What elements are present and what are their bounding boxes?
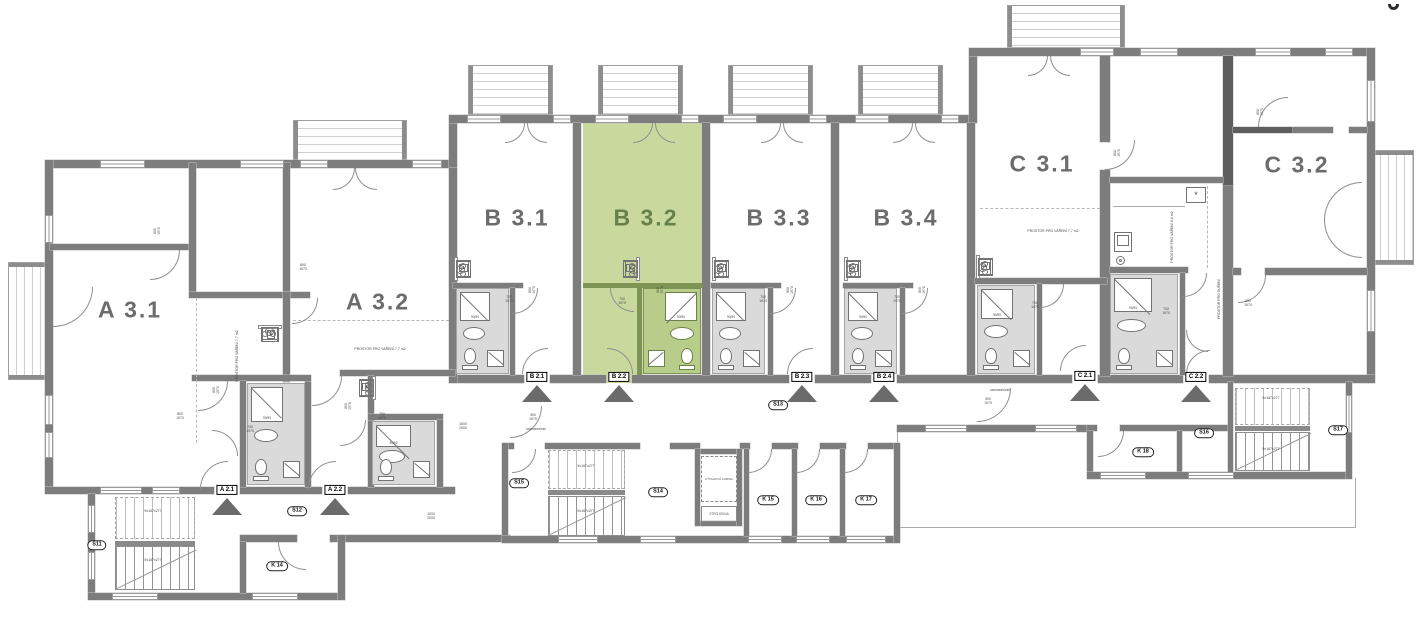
wall <box>1098 375 1183 383</box>
entrance-triangle-icon <box>869 385 899 402</box>
entrance-triangle-icon <box>212 498 242 515</box>
window <box>925 425 967 432</box>
window <box>112 593 158 600</box>
window <box>412 160 442 168</box>
wall <box>240 535 297 542</box>
wall <box>283 163 290 298</box>
elevator-cabin: VÝTAHOVÁ KABINA <box>701 456 737 502</box>
balcony <box>293 120 407 165</box>
room-tag-K15: K 15 <box>757 495 779 505</box>
wall <box>815 375 871 383</box>
entrance-triangle-icon <box>787 385 817 402</box>
balcony-wall <box>1373 151 1413 155</box>
window <box>1367 80 1375 122</box>
wall <box>695 449 742 454</box>
window <box>467 115 501 123</box>
window <box>252 593 298 600</box>
dimension-annotation: 9x167x277 <box>1262 396 1279 400</box>
window <box>100 487 142 494</box>
dimension-annotation: PROSTOR PRO SUŠENÍ <box>1217 279 1221 319</box>
window <box>45 432 53 458</box>
unit-hotspot-B3.4[interactable] <box>843 123 967 375</box>
wall <box>502 443 508 543</box>
wall <box>897 375 1072 383</box>
window <box>300 160 328 168</box>
window <box>681 115 699 123</box>
balcony-wall <box>599 66 603 114</box>
window <box>240 160 284 168</box>
unit-hotspot-B3.1[interactable] <box>457 123 573 375</box>
balcony-wall <box>469 66 473 114</box>
window <box>640 536 676 543</box>
wall <box>1110 177 1223 183</box>
dimension-annotation: 900 1970 <box>984 397 992 405</box>
shower-size-label: 90/90 <box>1115 306 1151 310</box>
balcony <box>728 65 813 115</box>
entrance-triangle-icon <box>522 385 552 402</box>
room-tag-S15: S15 <box>509 478 529 488</box>
window <box>1100 472 1146 479</box>
door-swing-icon <box>512 449 536 473</box>
wall <box>1087 431 1093 472</box>
shower-icon: 90/90 <box>1114 278 1152 312</box>
unit-hotspot-C3.2[interactable] <box>1233 56 1367 375</box>
window <box>558 536 598 543</box>
balcony <box>858 65 943 115</box>
stair-flight <box>115 497 195 539</box>
door-swing-icon <box>796 449 820 473</box>
balcony <box>8 262 48 380</box>
wall <box>632 375 789 383</box>
wall <box>1110 267 1188 273</box>
wall <box>894 443 900 543</box>
unit-hotspot-B3.2[interactable] <box>583 123 702 375</box>
window <box>1188 472 1234 479</box>
window <box>152 487 180 494</box>
elevator-machine-room: STROJOVNA <box>701 506 737 522</box>
dimension-annotation: samozavírač <box>990 388 1010 392</box>
balcony-wall <box>9 375 47 379</box>
toilet-icon <box>1116 348 1132 372</box>
wall <box>695 449 700 526</box>
footprint-line <box>897 527 1356 528</box>
unit-hotspot-A3.1[interactable] <box>53 168 283 487</box>
stair-landing <box>1235 426 1310 431</box>
wall <box>283 292 290 382</box>
door-swing-icon <box>1183 273 1207 297</box>
spiral-icon <box>1116 256 1125 265</box>
wall <box>449 115 975 123</box>
window <box>88 552 95 580</box>
stair-flight <box>1235 388 1310 425</box>
window <box>748 536 782 543</box>
stair-landing <box>548 490 625 495</box>
wall <box>573 123 581 375</box>
balcony <box>1372 150 1414 265</box>
wall <box>449 375 524 383</box>
door-swing-icon <box>510 406 542 438</box>
wall <box>240 542 246 593</box>
wall <box>338 535 345 600</box>
window <box>45 215 53 243</box>
balcony <box>598 65 683 115</box>
balcony-wall <box>808 66 812 114</box>
washing-machine-icon <box>1156 350 1173 367</box>
balcony-wall <box>402 121 406 164</box>
dimension-annotation: 1000 2000 <box>459 422 467 430</box>
room-tag-S11: S11 <box>87 540 106 550</box>
window <box>1080 48 1114 56</box>
balcony-wall <box>678 66 682 114</box>
door-swing-icon <box>1098 431 1124 457</box>
dimension-annotation: 700 1970 <box>1162 307 1170 315</box>
dimension-annotation: PROSTOR PRO VAŘENÍ 8,6 m2 <box>1170 211 1174 262</box>
window <box>809 115 827 123</box>
wall <box>1223 186 1233 376</box>
unit-hotspot-B3.3[interactable] <box>711 123 831 375</box>
window <box>100 160 145 168</box>
window <box>1035 425 1077 432</box>
room-tag-S14: S14 <box>648 487 668 497</box>
window <box>1367 290 1375 332</box>
room-tag-K16: K 16 <box>805 495 827 505</box>
room-tag-S16: S16 <box>1194 428 1214 438</box>
wall <box>1177 431 1182 472</box>
dimension-annotation: 900 1970 <box>529 413 537 421</box>
entrance-triangle-icon <box>1070 384 1100 401</box>
wall <box>702 123 710 375</box>
wall <box>1100 170 1110 376</box>
footprint-line <box>1355 478 1356 528</box>
window <box>846 536 886 543</box>
window <box>855 115 889 123</box>
wall <box>545 443 640 449</box>
balcony-wall <box>859 66 863 114</box>
dimension-annotation: samozavírač <box>526 427 546 431</box>
dimension-annotation: 9x167x277 <box>577 509 594 513</box>
wall <box>1223 56 1233 186</box>
corner-mark <box>1388 4 1399 10</box>
dimension-annotation: 800 1970 <box>1113 149 1121 157</box>
stair-flight <box>548 450 625 489</box>
door-swing-icon <box>844 449 868 473</box>
room-tag-S13: S13 <box>768 400 788 410</box>
door-swing-icon <box>1186 330 1208 352</box>
entrance-badge-C2.2: C 2.2 <box>1185 372 1206 382</box>
balcony-wall <box>938 66 942 114</box>
unit-hotspot-A3.2[interactable] <box>290 168 449 487</box>
balcony <box>1007 5 1125 48</box>
wall <box>550 375 606 383</box>
toilet-tank <box>1116 365 1132 370</box>
washbasin-icon <box>1117 319 1146 332</box>
room-tag-S17: S17 <box>1328 425 1348 435</box>
wall <box>1100 56 1110 142</box>
window <box>723 115 757 123</box>
wall <box>330 535 510 542</box>
sink-inner <box>1117 235 1129 246</box>
wall <box>831 123 839 375</box>
window <box>1325 48 1353 56</box>
counter-line <box>1113 206 1185 207</box>
dimension-annotation: 1000 2000 <box>427 512 435 520</box>
balcony-wall <box>548 66 552 114</box>
balcony-wall <box>1120 6 1124 47</box>
balcony-wall <box>729 66 733 114</box>
window <box>553 115 571 123</box>
window <box>595 115 629 123</box>
floor-plan: 90/9090/9090/9090/9090/9090/9090/9090/90… <box>0 0 1420 640</box>
wall <box>348 487 455 494</box>
room-tag-K14: K 14 <box>266 561 288 571</box>
dimension-annotation: 9x167x277 <box>144 509 161 513</box>
dimension-annotation: 9x167x277 <box>144 558 161 562</box>
wall <box>969 48 977 123</box>
window <box>1255 48 1291 56</box>
balcony <box>468 65 553 115</box>
room-tag-K18: K 18 <box>1132 447 1154 457</box>
dimension-annotation: 9x167x277 <box>577 464 594 468</box>
toilet-bowl <box>1118 348 1130 364</box>
window <box>1140 48 1178 56</box>
asterisk-icon: * <box>1186 187 1206 203</box>
window <box>88 505 95 533</box>
entrance-triangle-icon <box>320 498 350 515</box>
bathroom: 90/90 <box>1110 274 1178 374</box>
door-swing-icon <box>748 449 772 473</box>
window <box>796 536 830 543</box>
dashed-line <box>1207 186 1208 268</box>
unit-hotspot-C3.1[interactable] <box>977 56 1100 375</box>
dimension-annotation: 9x167x277 <box>1262 447 1279 451</box>
room-tag-S12: S12 <box>287 506 307 516</box>
wall <box>737 449 742 526</box>
balcony-wall <box>9 263 47 267</box>
entrance-triangle-icon <box>604 385 634 402</box>
window <box>45 395 53 425</box>
balcony-wall <box>1373 260 1413 264</box>
wall <box>1228 382 1233 478</box>
wall <box>967 123 975 375</box>
door-swing-icon <box>977 388 1011 422</box>
room-tag-K17: K 17 <box>855 495 877 505</box>
entrance-triangle-icon <box>1181 385 1211 402</box>
balcony-wall <box>1008 6 1012 47</box>
window <box>941 115 959 123</box>
door-swing-icon <box>1186 350 1210 374</box>
balcony-wall <box>294 121 298 164</box>
